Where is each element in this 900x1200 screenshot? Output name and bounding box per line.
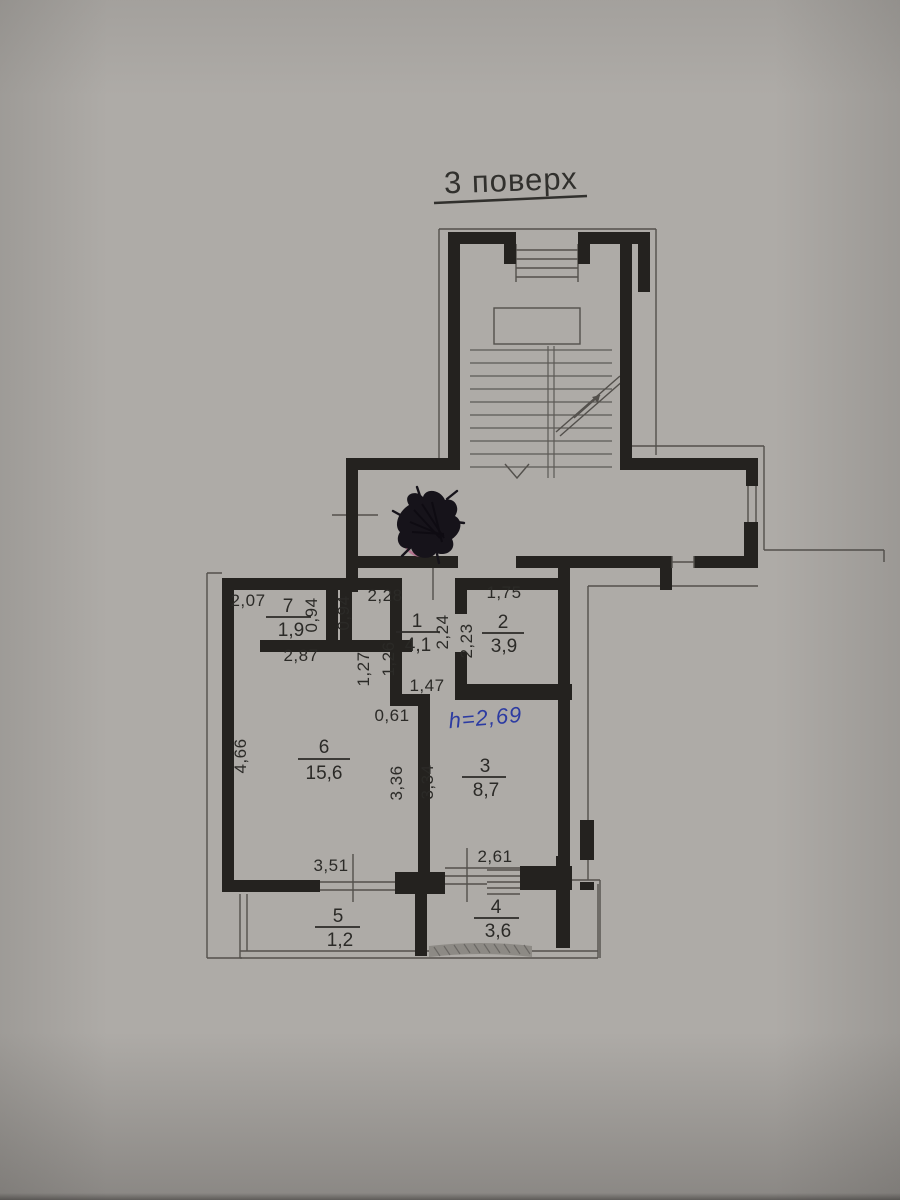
photo-bottom-shadow: [0, 1193, 900, 1200]
photo-vignette: [0, 0, 900, 1200]
